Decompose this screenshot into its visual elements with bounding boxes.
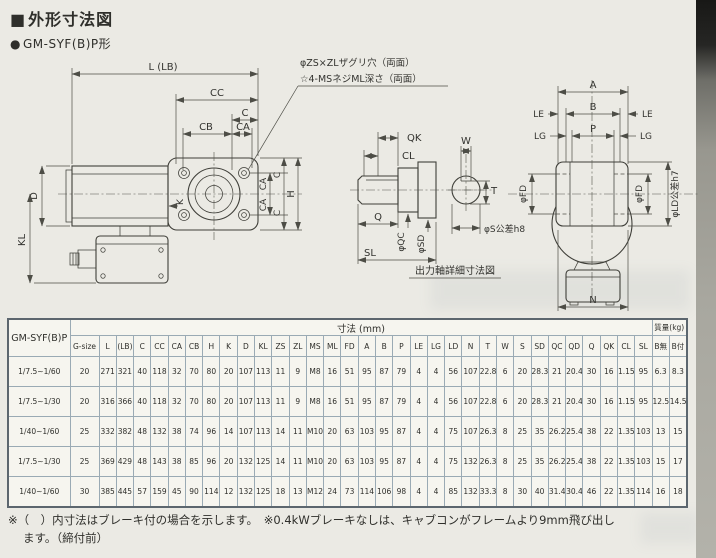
dim-cell: 63 xyxy=(341,417,358,447)
column-header-23: T xyxy=(479,336,496,357)
dim-cell: 87 xyxy=(393,447,410,477)
dim-cell: 20 xyxy=(220,357,237,387)
dim-cell: 56 xyxy=(445,357,462,387)
dim-cell: 20 xyxy=(70,357,99,387)
dim-label-b: B xyxy=(590,102,597,113)
dim-cell: 25 xyxy=(514,447,531,477)
dim-cell: 385 xyxy=(99,477,116,508)
dim-cell: 16 xyxy=(652,477,669,508)
dim-cell: 20 xyxy=(70,387,99,417)
dim-cell: 107 xyxy=(462,417,479,447)
square-bullet-icon: ■ xyxy=(10,10,26,29)
dim-label-fd-right: φFD xyxy=(635,185,645,203)
dim-cell: 114 xyxy=(358,477,375,508)
dim-cell: 107 xyxy=(237,357,254,387)
dim-cell: 20 xyxy=(220,447,237,477)
dim-cell: 28.3 xyxy=(531,357,548,387)
dim-cell: 46 xyxy=(583,477,600,508)
column-header-17: B xyxy=(376,336,393,357)
dimensions-unit-header: 寸法 (mm) xyxy=(70,319,652,336)
dim-cell: 11 xyxy=(272,387,289,417)
column-header-19: LE xyxy=(410,336,427,357)
dim-cell: 30 xyxy=(514,477,531,508)
circle-bullet-icon: ● xyxy=(10,37,21,51)
dim-cell: 107 xyxy=(237,417,254,447)
dim-cell: M12 xyxy=(306,477,323,508)
dim-cell: 25.4 xyxy=(566,417,583,447)
dim-cell: 4 xyxy=(410,477,427,508)
dim-cell: 4 xyxy=(427,417,444,447)
dim-cell: 118 xyxy=(151,357,168,387)
dim-cell: 382 xyxy=(116,417,133,447)
shaft-detail-caption: 出力軸詳細寸法図 xyxy=(415,264,495,277)
footnotes: ※（ ）内寸法はブレーキ付の場合を示します。 ※0.4kWブレーキなしは、キャブ… xyxy=(8,511,615,548)
dim-label-le-right: LE xyxy=(642,110,653,120)
column-header-28: QD xyxy=(566,336,583,357)
tapped-hole-note: ☆4-MSネジML深さ（両面） xyxy=(300,73,422,85)
dim-cell: 159 xyxy=(151,477,168,508)
dim-cell: 22 xyxy=(600,477,617,508)
dim-cell: 107 xyxy=(237,387,254,417)
dim-cell: 8 xyxy=(496,447,513,477)
table-row: 1/7.5~1/60202713214011832708020107113119… xyxy=(8,357,687,387)
dim-cell: 13 xyxy=(652,417,669,447)
dim-cell: 95 xyxy=(376,447,393,477)
dim-cell: 13 xyxy=(289,477,306,508)
dim-cell: 57 xyxy=(134,477,151,508)
column-header-33: B無 xyxy=(652,336,669,357)
column-header-31: CL xyxy=(617,336,634,357)
dim-cell: 95 xyxy=(635,357,652,387)
column-header-5: CA xyxy=(168,336,185,357)
dim-cell: 6 xyxy=(496,357,513,387)
column-header-7: H xyxy=(203,336,220,357)
dim-label-t: T xyxy=(490,186,498,197)
column-header-6: CB xyxy=(185,336,202,357)
dim-cell: 87 xyxy=(393,417,410,447)
dim-label-qc: φQC xyxy=(397,232,407,251)
dim-label-c-top: C xyxy=(273,172,283,178)
dim-label-le-left: LE xyxy=(533,110,544,120)
dim-cell: 25.4 xyxy=(566,447,583,477)
dim-label-d: D xyxy=(29,192,40,200)
scan-smudge xyxy=(640,512,700,544)
dim-cell: M10 xyxy=(306,417,323,447)
dim-cell: 4 xyxy=(427,387,444,417)
dim-cell: 45 xyxy=(168,477,185,508)
dim-cell: 28.3 xyxy=(531,387,548,417)
dim-cell: M10 xyxy=(306,447,323,477)
ratio-cell: 1/7.5~1/60 xyxy=(8,357,70,387)
dim-cell: 316 xyxy=(99,387,116,417)
dim-cell: 14 xyxy=(272,417,289,447)
dim-cell: 24 xyxy=(324,477,341,508)
dim-label-c: C xyxy=(242,108,249,119)
column-header-8: K xyxy=(220,336,237,357)
dim-label-a: A xyxy=(590,80,597,91)
column-header-15: FD xyxy=(341,336,358,357)
dim-cell: 12 xyxy=(220,477,237,508)
dim-cell: 22 xyxy=(600,417,617,447)
output-shaft-detail-view: QK CL Q SL φQC φSD W T xyxy=(350,132,525,278)
dim-cell: 132 xyxy=(237,477,254,508)
dim-cell: 4 xyxy=(410,387,427,417)
dim-label-n: N xyxy=(589,295,596,306)
table-row: 1/40~1/603038544557159459011412132125181… xyxy=(8,477,687,508)
dim-cell: 22.8 xyxy=(479,387,496,417)
dim-cell: 8.3 xyxy=(669,357,687,387)
dim-cell: 20 xyxy=(514,387,531,417)
dim-cell: 1.35 xyxy=(617,417,634,447)
dim-cell: 4 xyxy=(427,357,444,387)
left-side-view: L (LB) CC C CB CA K xyxy=(17,62,302,283)
dim-cell: 90 xyxy=(185,477,202,508)
dim-cell: 1.15 xyxy=(617,357,634,387)
dim-cell: 16 xyxy=(600,357,617,387)
column-header-24: W xyxy=(496,336,513,357)
column-header-29: Q xyxy=(583,336,600,357)
dim-cell: 87 xyxy=(376,357,393,387)
dim-cell: 15 xyxy=(652,447,669,477)
dim-cell: 31.4 xyxy=(548,477,565,508)
dim-label-h: H xyxy=(286,190,297,198)
dim-cell: 429 xyxy=(116,447,133,477)
dim-cell: 79 xyxy=(393,357,410,387)
dim-label-ld-tolerance: φLD公差h7 xyxy=(669,170,681,217)
column-header-13: MS xyxy=(306,336,323,357)
table-row: 1/40~1/602533238248132387496141071131411… xyxy=(8,417,687,447)
dim-cell: 96 xyxy=(203,417,220,447)
dim-cell: 80 xyxy=(203,357,220,387)
counterbore-note: φZS×ZLザグリ穴（両面） xyxy=(300,57,415,69)
dim-label-s-tolerance: φS公差h8 xyxy=(484,223,525,235)
column-header-18: P xyxy=(393,336,410,357)
column-header-14: ML xyxy=(324,336,341,357)
dim-cell: 107 xyxy=(462,357,479,387)
dim-label-ca-top: CA xyxy=(259,177,269,190)
dim-cell: 26.2 xyxy=(548,447,565,477)
dim-cell: 26.3 xyxy=(479,417,496,447)
dim-cell: 143 xyxy=(151,447,168,477)
dim-cell: 6 xyxy=(496,387,513,417)
dim-cell: 22 xyxy=(600,447,617,477)
dim-cell: 26.3 xyxy=(479,447,496,477)
dim-cell: 14 xyxy=(220,417,237,447)
dim-cell: 271 xyxy=(99,357,116,387)
dim-cell: 103 xyxy=(635,447,652,477)
column-header-10: KL xyxy=(255,336,272,357)
dim-cell: 30 xyxy=(583,357,600,387)
dim-cell: 125 xyxy=(255,447,272,477)
dim-label-ca: CA xyxy=(236,122,250,133)
dim-cell: 73 xyxy=(341,477,358,508)
dim-cell: 40 xyxy=(531,477,548,508)
dim-cell: 445 xyxy=(116,477,133,508)
dim-cell: 15 xyxy=(669,417,687,447)
column-header-16: A xyxy=(358,336,375,357)
column-header-25: S xyxy=(514,336,531,357)
ratio-cell: 1/40~1/60 xyxy=(8,477,70,508)
dim-cell: 21 xyxy=(548,387,565,417)
dim-cell: 16 xyxy=(600,387,617,417)
dim-cell: 85 xyxy=(185,447,202,477)
dim-label-sd: φSD xyxy=(417,235,427,254)
dim-cell: 9 xyxy=(289,357,306,387)
dim-cell: 30.4 xyxy=(566,477,583,508)
dim-cell: 4 xyxy=(427,447,444,477)
dim-cell: 113 xyxy=(255,417,272,447)
column-header-27: QC xyxy=(548,336,565,357)
dim-cell: 20 xyxy=(514,357,531,387)
dim-label-lg-right: LG xyxy=(640,132,652,142)
dim-cell: 16 xyxy=(324,357,341,387)
dim-cell: 95 xyxy=(358,387,375,417)
column-header-32: SL xyxy=(635,336,652,357)
dim-cell: 16 xyxy=(324,387,341,417)
dim-label-k: K xyxy=(176,198,186,205)
dim-cell: 18 xyxy=(669,477,687,508)
dim-cell: 1.35 xyxy=(617,447,634,477)
dim-label-p: P xyxy=(590,124,596,135)
footnote-line-2: ます。（締付前） xyxy=(23,529,615,547)
dim-cell: 40 xyxy=(134,387,151,417)
hole-annotations: φZS×ZLザグリ穴（両面） ☆4-MSネジML深さ（両面） xyxy=(248,57,448,170)
dim-cell: 95 xyxy=(635,387,652,417)
dim-cell: 18 xyxy=(272,477,289,508)
dim-cell: 113 xyxy=(255,387,272,417)
dim-cell: 26.2 xyxy=(548,417,565,447)
dim-cell: 132 xyxy=(462,477,479,508)
dim-cell: 98 xyxy=(393,477,410,508)
dim-cell: 40 xyxy=(134,357,151,387)
page-header: ■外形寸法図 ●GM-SYF(B)P形 xyxy=(10,6,113,52)
dim-cell: 4 xyxy=(410,447,427,477)
dim-cell: 20 xyxy=(324,417,341,447)
dim-cell: 17 xyxy=(669,447,687,477)
dim-label-cc: CC xyxy=(210,88,224,99)
column-header-1: L xyxy=(99,336,116,357)
column-header-2: (LB) xyxy=(116,336,133,357)
dim-cell: 25 xyxy=(70,417,99,447)
dim-cell: 38 xyxy=(583,447,600,477)
dim-cell: 51 xyxy=(341,387,358,417)
dim-cell: 87 xyxy=(376,387,393,417)
ratio-cell: 1/7.5~1/30 xyxy=(8,447,70,477)
dim-cell: 30 xyxy=(70,477,99,508)
dim-cell: 4 xyxy=(427,477,444,508)
dim-cell: 11 xyxy=(289,447,306,477)
model-name: GM-SYF(B)P形 xyxy=(23,37,111,51)
dim-cell: 30 xyxy=(583,387,600,417)
dim-cell: 20 xyxy=(324,447,341,477)
dim-cell: 38 xyxy=(583,417,600,447)
dim-label-qk: QK xyxy=(407,133,422,144)
dim-label-cb: CB xyxy=(199,122,213,133)
dim-cell: 366 xyxy=(116,387,133,417)
dim-label-q: Q xyxy=(374,212,382,223)
dim-cell: 96 xyxy=(203,447,220,477)
dim-cell: 70 xyxy=(185,387,202,417)
dim-cell: 79 xyxy=(393,387,410,417)
dim-cell: 1.15 xyxy=(617,387,634,417)
dim-label-l: L (LB) xyxy=(149,62,178,73)
page-title: ■外形寸法図 xyxy=(10,6,113,30)
dim-cell: 80 xyxy=(203,387,220,417)
dim-cell: 8 xyxy=(496,477,513,508)
dim-cell: 114 xyxy=(203,477,220,508)
column-header-11: ZS xyxy=(272,336,289,357)
dim-cell: 22.8 xyxy=(479,357,496,387)
ratio-cell: 1/7.5~1/30 xyxy=(8,387,70,417)
dim-cell: 4 xyxy=(410,417,427,447)
dim-cell: 35 xyxy=(531,417,548,447)
table-corner-label: GM-SYF(B)P xyxy=(8,319,70,357)
column-header-4: CC xyxy=(151,336,168,357)
dim-cell: 118 xyxy=(151,387,168,417)
dim-cell: 38 xyxy=(168,447,185,477)
dim-cell: 38 xyxy=(168,417,185,447)
right-top-view: A B LE LE P LG LG φFD φFD xyxy=(508,80,698,311)
dim-label-sl: SL xyxy=(364,248,376,259)
dim-cell: 20.4 xyxy=(566,357,583,387)
dimension-drawings: L (LB) CC C CB CA K xyxy=(0,54,716,316)
column-header-26: SD xyxy=(531,336,548,357)
dim-cell: 95 xyxy=(358,357,375,387)
dim-cell: 14.5 xyxy=(669,387,687,417)
dim-cell: 321 xyxy=(116,357,133,387)
dim-cell: 9 xyxy=(289,387,306,417)
column-header-34: B付 xyxy=(669,336,687,357)
column-header-22: N xyxy=(462,336,479,357)
dim-cell: 21 xyxy=(548,357,565,387)
dim-cell: 70 xyxy=(185,357,202,387)
column-header-20: LG xyxy=(427,336,444,357)
dim-cell: 35 xyxy=(531,447,548,477)
dim-cell: 103 xyxy=(358,417,375,447)
dim-cell: 132 xyxy=(237,447,254,477)
dim-cell: 11 xyxy=(289,417,306,447)
column-header-21: LD xyxy=(445,336,462,357)
dim-cell: 48 xyxy=(134,417,151,447)
dim-cell: 33.3 xyxy=(479,477,496,508)
dim-cell: 25 xyxy=(70,447,99,477)
dim-cell: 114 xyxy=(635,477,652,508)
dim-cell: M8 xyxy=(306,387,323,417)
table-row: 1/7.5~1/30253694294814338859620132125141… xyxy=(8,447,687,477)
dim-cell: 75 xyxy=(445,447,462,477)
dim-cell: 1.35 xyxy=(617,477,634,508)
dim-label-ca-bottom: CA xyxy=(259,198,269,211)
dim-cell: 132 xyxy=(151,417,168,447)
dim-cell: 369 xyxy=(99,447,116,477)
dim-cell: 48 xyxy=(134,447,151,477)
dim-cell: 132 xyxy=(462,447,479,477)
ratio-cell: 1/40~1/60 xyxy=(8,417,70,447)
dim-label-c-bottom: C xyxy=(273,210,283,216)
column-header-3: C xyxy=(134,336,151,357)
dimension-table: GM-SYF(B)P寸法 (mm)質量(kg)G-sizeL(LB)CCCCAC… xyxy=(7,318,688,508)
dim-cell: 32 xyxy=(168,357,185,387)
dim-cell: 63 xyxy=(341,447,358,477)
dim-label-w: W xyxy=(461,136,471,147)
dim-cell: 12.5 xyxy=(652,387,669,417)
dim-cell: 106 xyxy=(376,477,393,508)
dim-cell: 95 xyxy=(376,417,393,447)
dim-cell: 56 xyxy=(445,387,462,417)
dim-cell: 51 xyxy=(341,357,358,387)
column-header-12: ZL xyxy=(289,336,306,357)
dim-cell: 125 xyxy=(255,477,272,508)
table-row: 1/7.5~1/30203163664011832708020107113119… xyxy=(8,387,687,417)
page-title-text: 外形寸法図 xyxy=(28,10,113,29)
dim-cell: 11 xyxy=(272,357,289,387)
dim-cell: 74 xyxy=(185,417,202,447)
dim-cell: 20.4 xyxy=(566,387,583,417)
column-header-9: D xyxy=(237,336,254,357)
dim-cell: 32 xyxy=(168,387,185,417)
mass-unit-header: 質量(kg) xyxy=(652,319,687,336)
footnote-line-1: ※（ ）内寸法はブレーキ付の場合を示します。 ※0.4kWブレーキなしは、キャブ… xyxy=(8,511,615,529)
dim-cell: 113 xyxy=(255,357,272,387)
dim-cell: 6.3 xyxy=(652,357,669,387)
dim-label-cl: CL xyxy=(402,151,415,162)
dim-cell: 14 xyxy=(272,447,289,477)
dim-cell: 85 xyxy=(445,477,462,508)
column-header-0: G-size xyxy=(70,336,99,357)
dim-cell: 107 xyxy=(462,387,479,417)
dim-cell: 4 xyxy=(410,357,427,387)
dim-cell: 25 xyxy=(514,417,531,447)
dim-label-kl: KL xyxy=(17,234,28,247)
column-header-30: QK xyxy=(600,336,617,357)
dim-label-fd-left: φFD xyxy=(519,185,529,203)
dim-cell: 103 xyxy=(635,417,652,447)
dim-label-lg-left: LG xyxy=(534,132,546,142)
dim-cell: M8 xyxy=(306,357,323,387)
dim-cell: 103 xyxy=(358,447,375,477)
dim-cell: 75 xyxy=(445,417,462,447)
dim-cell: 332 xyxy=(99,417,116,447)
dim-cell: 8 xyxy=(496,417,513,447)
model-subtitle: ●GM-SYF(B)P形 xyxy=(10,35,113,52)
dim-cell: 20 xyxy=(220,387,237,417)
